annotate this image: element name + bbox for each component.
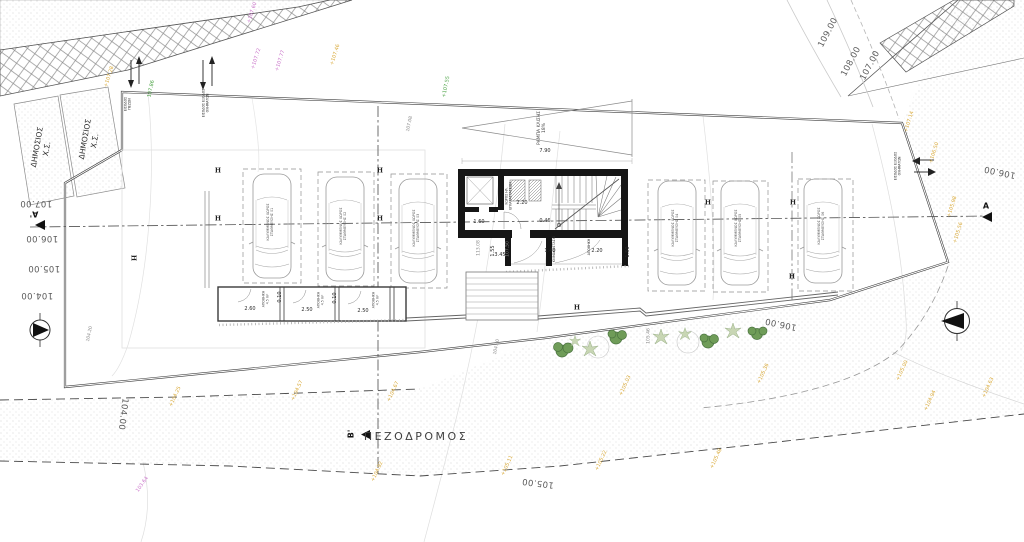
datum-circle-left-icon — [30, 313, 50, 347]
car-icon — [395, 179, 441, 283]
elevator-icon — [467, 177, 493, 204]
section-a-left-arrow-icon — [35, 220, 45, 230]
car-icon — [800, 179, 846, 283]
site-plan-drawing: 109.00 108.00 107.00 107.00 106.00 105.0… — [0, 0, 1024, 542]
public-parcels — [14, 87, 125, 205]
site-plan-linework — [0, 0, 1024, 542]
exterior-stair — [466, 272, 538, 320]
car-icon — [654, 181, 700, 285]
car-icon — [322, 177, 368, 281]
storage-strip — [218, 287, 406, 325]
car-icon — [717, 181, 763, 285]
stair-treads — [552, 176, 621, 230]
car-icon — [249, 174, 295, 278]
entrance-arrows — [128, 56, 936, 176]
cars — [249, 174, 846, 285]
